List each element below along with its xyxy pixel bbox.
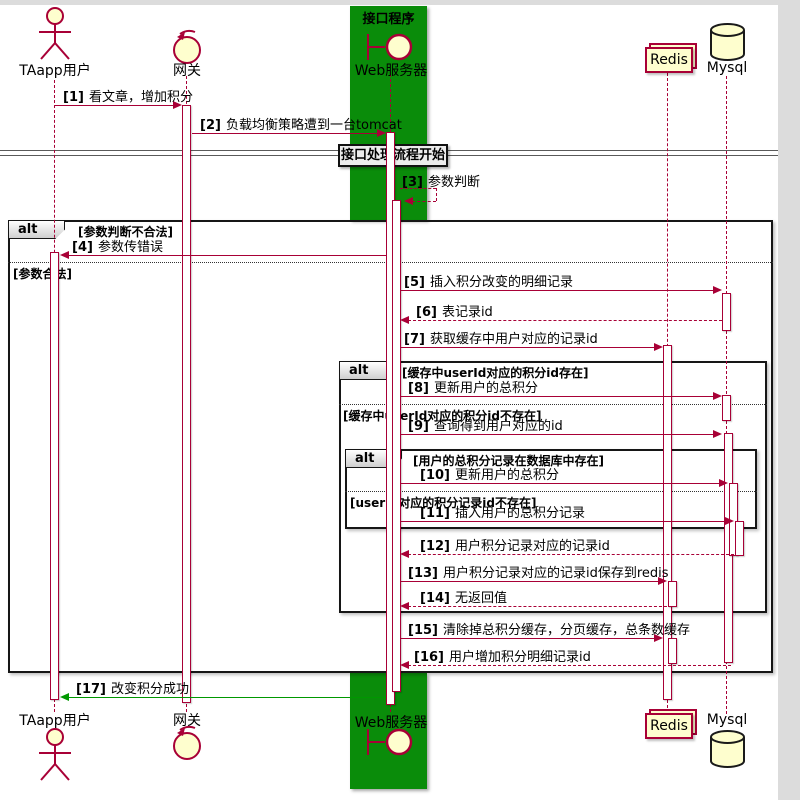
message-8-label: [8]更新用户的总积分 <box>408 377 538 396</box>
webserver-box-title: 接口程序 <box>350 8 427 27</box>
participant-redis-top: Redis <box>645 47 693 73</box>
arrowhead-8 <box>713 392 722 400</box>
arrowhead-14 <box>400 602 409 610</box>
arrow-2 <box>192 133 378 134</box>
arrowhead-17 <box>60 693 69 701</box>
participant-redis-bottom: Redis <box>645 713 693 739</box>
message-2-label: [2]负载均衡策略遭到一台tomcat <box>200 114 402 133</box>
message-13-label: [13]用户积分记录对应的记录id保存到redis <box>408 562 669 581</box>
page-margin-top <box>0 0 800 5</box>
activation-redis-2 <box>668 581 677 607</box>
activation-redis-3 <box>668 638 677 664</box>
arrow-7 <box>400 347 655 348</box>
page-margin-right <box>778 0 800 800</box>
participant-webserver-top: Web服务器 <box>341 60 441 80</box>
arrow-14 <box>408 606 672 607</box>
arrowhead-10 <box>719 479 728 487</box>
message-12-label: [12]用户积分记录对应的记录id <box>420 535 610 554</box>
actor-icon-top <box>33 6 77 62</box>
arrowhead-11 <box>725 517 734 525</box>
arrow-15 <box>400 638 655 639</box>
message-4-label: [4]参数传错误 <box>72 236 163 255</box>
arrowhead-7 <box>654 343 663 351</box>
activation-webserver-2 <box>392 200 401 692</box>
message-9-label: [9]查询得到用户对应的id <box>408 415 563 434</box>
activation-user <box>50 252 59 700</box>
message-15-label: [15]清除掉总积分缓存，分页缓存，总条数缓存 <box>408 619 690 638</box>
arrowhead-9 <box>713 430 722 438</box>
message-11-label: [11]插入用户的总积分记录 <box>420 502 585 521</box>
control-icon-bottom <box>165 724 209 762</box>
activation-mysql-5 <box>735 521 744 556</box>
alt1-guard-false: [参数合法] <box>13 265 72 282</box>
database-icon-bottom <box>709 728 746 770</box>
arrow-17 <box>68 697 386 698</box>
activation-gateway <box>182 105 191 703</box>
message-5-label: [5]插入积分改变的明细记录 <box>404 271 573 290</box>
arrowhead-5 <box>713 286 722 294</box>
message-17-label: [17]改变积分成功 <box>76 678 189 697</box>
message-7-label: [7]获取缓存中用户对应的记录id <box>404 328 598 347</box>
arrowhead-12 <box>400 550 409 558</box>
arrow-4 <box>68 255 386 256</box>
arrow-3-bottom <box>412 201 436 202</box>
message-3-label: [3]参数判断 <box>402 171 480 190</box>
message-10-label: [10]更新用户的总积分 <box>420 464 559 483</box>
message-16-label: [16]用户增加积分明细记录id <box>414 646 591 665</box>
participant-mysql-bottom: Mysql <box>687 712 767 728</box>
actor-icon-bottom <box>33 724 77 786</box>
boundary-icon-bottom <box>364 727 418 757</box>
participant-mysql-top: Mysql <box>687 60 767 76</box>
arrow-1 <box>55 105 174 106</box>
activation-mysql-1 <box>722 293 731 331</box>
arrow-11 <box>400 521 726 522</box>
alt1-operator: alt <box>8 220 65 239</box>
participant-user-top: TAapp用户 <box>5 60 105 80</box>
arrowhead-3 <box>404 197 413 205</box>
arrowhead-16 <box>400 661 409 669</box>
arrow-6 <box>408 320 722 321</box>
arrow-9 <box>400 434 714 435</box>
boundary-icon-top <box>364 32 418 62</box>
arrow-10 <box>400 483 720 484</box>
message-14-label: [14]无返回值 <box>420 587 507 606</box>
sequence-diagram: { "diagram": { "box_label": "接口程序", "div… <box>0 0 800 800</box>
message-1-label: [1]看文章，增加积分 <box>63 86 193 105</box>
database-icon-top <box>709 22 746 62</box>
alt3-else-divider <box>345 491 757 492</box>
alt2-else-divider <box>339 404 767 405</box>
participant-gateway-top: 网关 <box>137 60 237 80</box>
arrow-13 <box>400 581 659 582</box>
activation-mysql-2 <box>722 395 731 421</box>
arrow-5 <box>400 290 714 291</box>
message-6-label: [6]表记录id <box>416 301 493 320</box>
arrow-8 <box>400 396 714 397</box>
arrowhead-6 <box>400 316 409 324</box>
arrowhead-4 <box>60 251 69 259</box>
arrow-12 <box>408 554 734 555</box>
arrow-16 <box>408 665 731 666</box>
